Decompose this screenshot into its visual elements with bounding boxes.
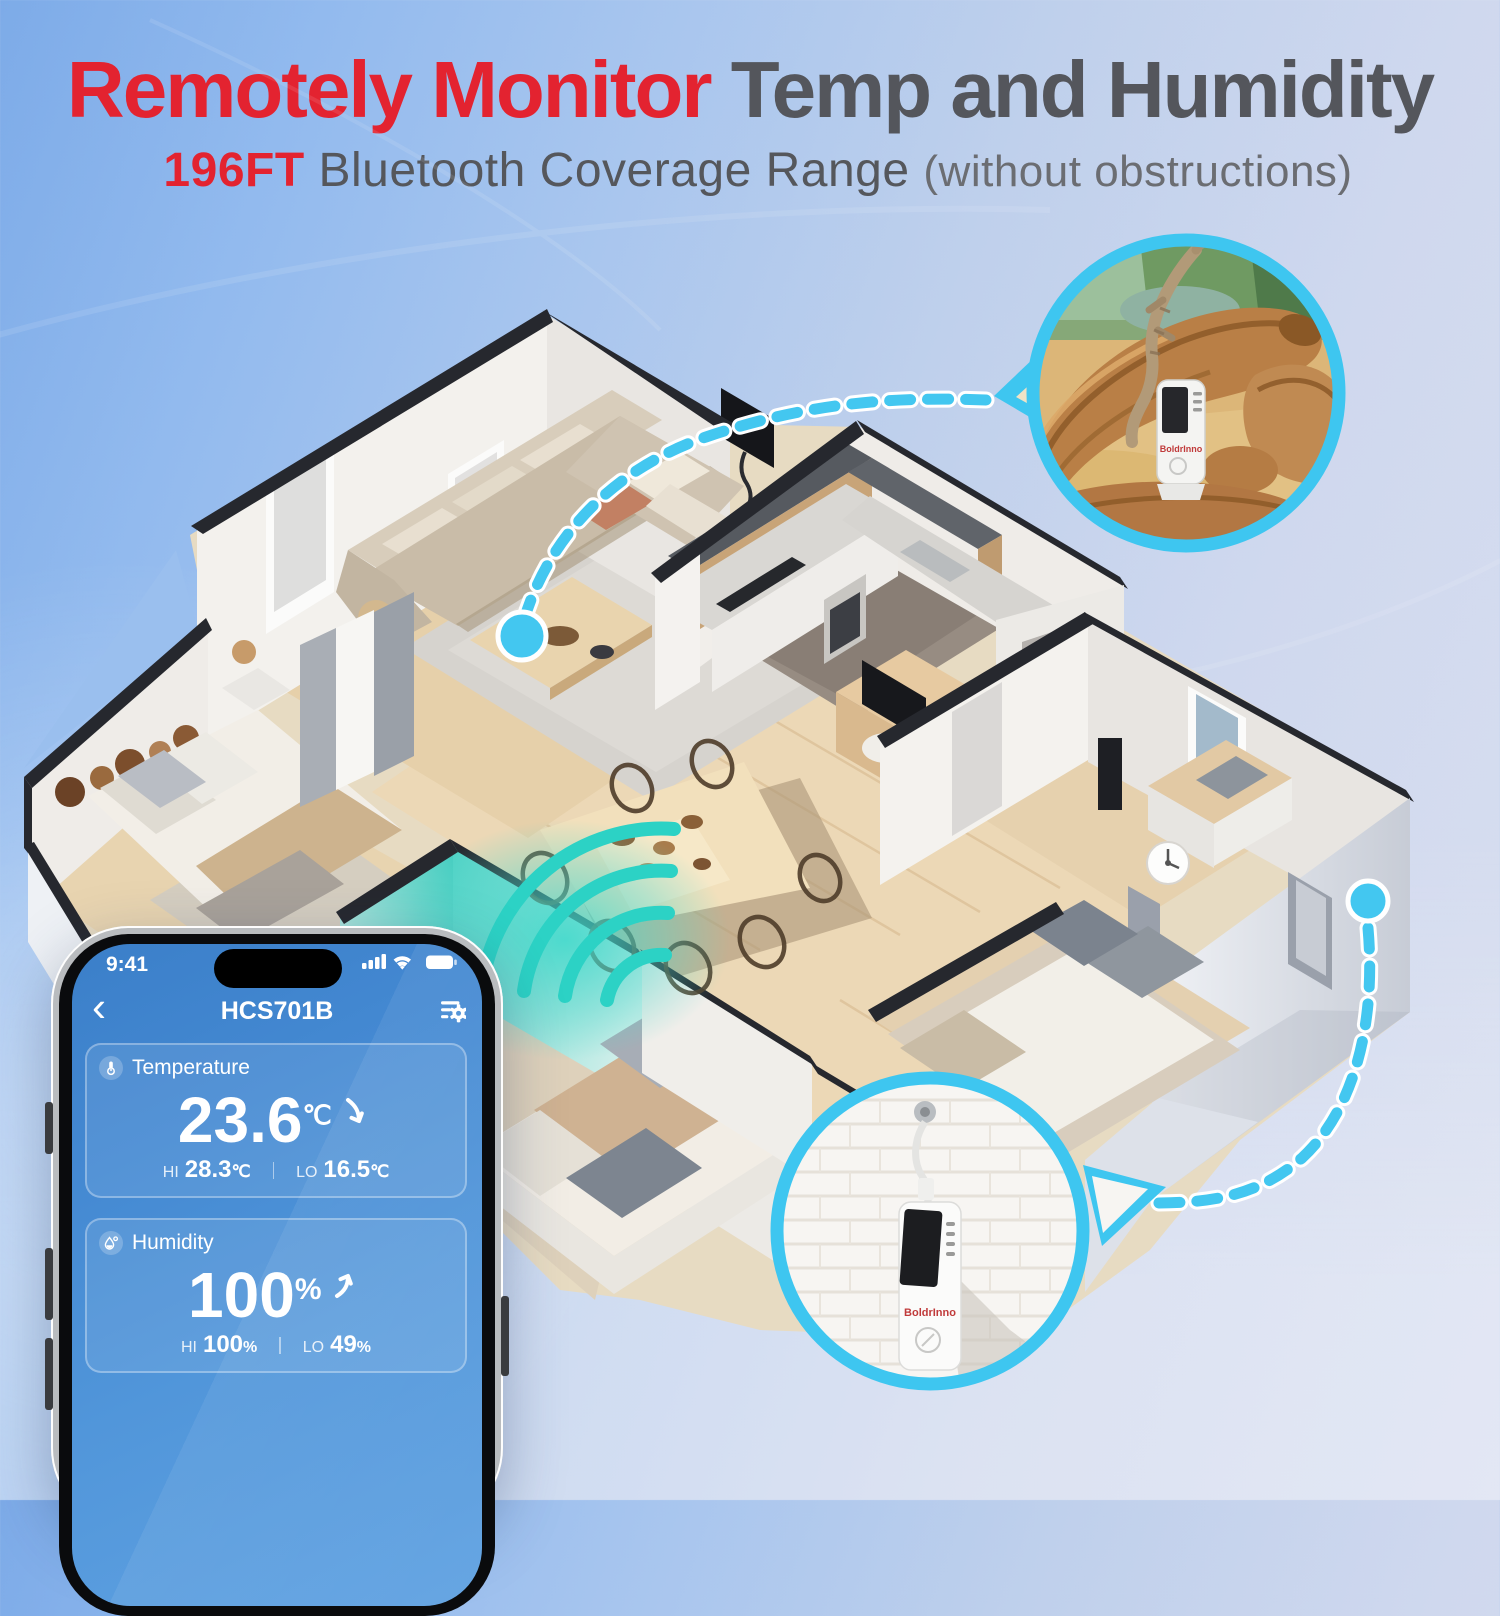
svg-text:BoldrInno: BoldrInno — [1160, 444, 1203, 454]
svg-text:BoldrInno: BoldrInno — [904, 1307, 956, 1319]
